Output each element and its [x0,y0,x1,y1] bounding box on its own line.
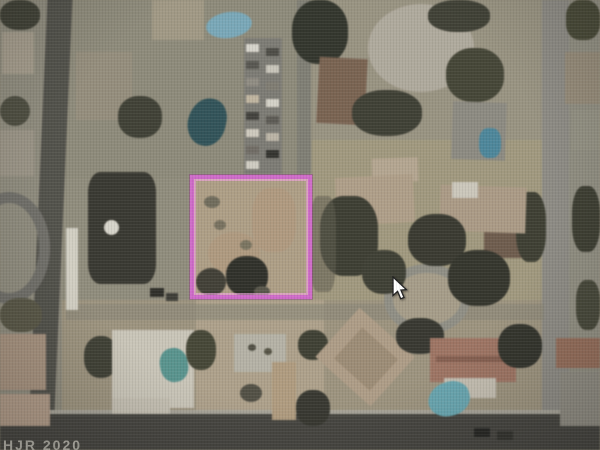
tree-cluster [118,96,162,138]
house [572,110,600,150]
tree-cluster [292,0,348,64]
tree-cluster [446,48,504,102]
house [2,32,34,74]
shadow [264,348,272,355]
car [166,293,178,301]
tree-cluster [0,298,42,332]
tree-cluster [448,250,510,306]
car [266,48,279,56]
car [266,99,279,107]
satellite-map[interactable]: HJR 2020 [0,0,600,450]
car [246,129,259,137]
car [246,61,259,69]
tree-cluster [498,324,542,368]
tree-cluster [576,280,600,330]
car [266,65,279,73]
car [497,431,513,440]
car [246,146,259,154]
tree-cluster [296,390,330,426]
tree-cluster [240,384,262,402]
car [266,116,279,124]
car [266,133,279,141]
car [246,112,259,120]
pool [479,128,501,158]
house [565,52,600,104]
house [112,398,170,414]
screenshot-root: HJR 2020 [0,0,600,450]
tree-cluster [0,96,30,126]
house-dark [88,172,156,284]
shadow [310,196,336,292]
house-red-roof [556,338,600,368]
house [560,372,600,426]
car [246,78,259,86]
car [150,288,164,297]
tree-cluster [572,186,600,252]
walkway [66,228,78,310]
shadow [248,344,256,351]
tree-cluster [428,0,490,32]
car [266,150,279,158]
watermark-text: HJR 2020 [3,437,82,450]
tree-cluster [0,0,40,30]
car [246,44,259,52]
mouse-cursor-icon [392,276,410,302]
car [266,82,279,90]
tree-cluster [186,330,216,370]
house [0,334,46,390]
roof-white [452,182,478,198]
car [246,95,259,103]
road-horizontal-mid [66,304,544,320]
car [474,428,490,437]
fountain [104,220,119,235]
house [152,0,204,40]
walkway [272,362,296,420]
tree-cluster [566,0,600,40]
car [246,161,259,169]
house [0,130,34,176]
parcel-highlight-rectangle[interactable] [190,175,312,299]
house [0,394,50,426]
tree-cluster [352,90,422,136]
